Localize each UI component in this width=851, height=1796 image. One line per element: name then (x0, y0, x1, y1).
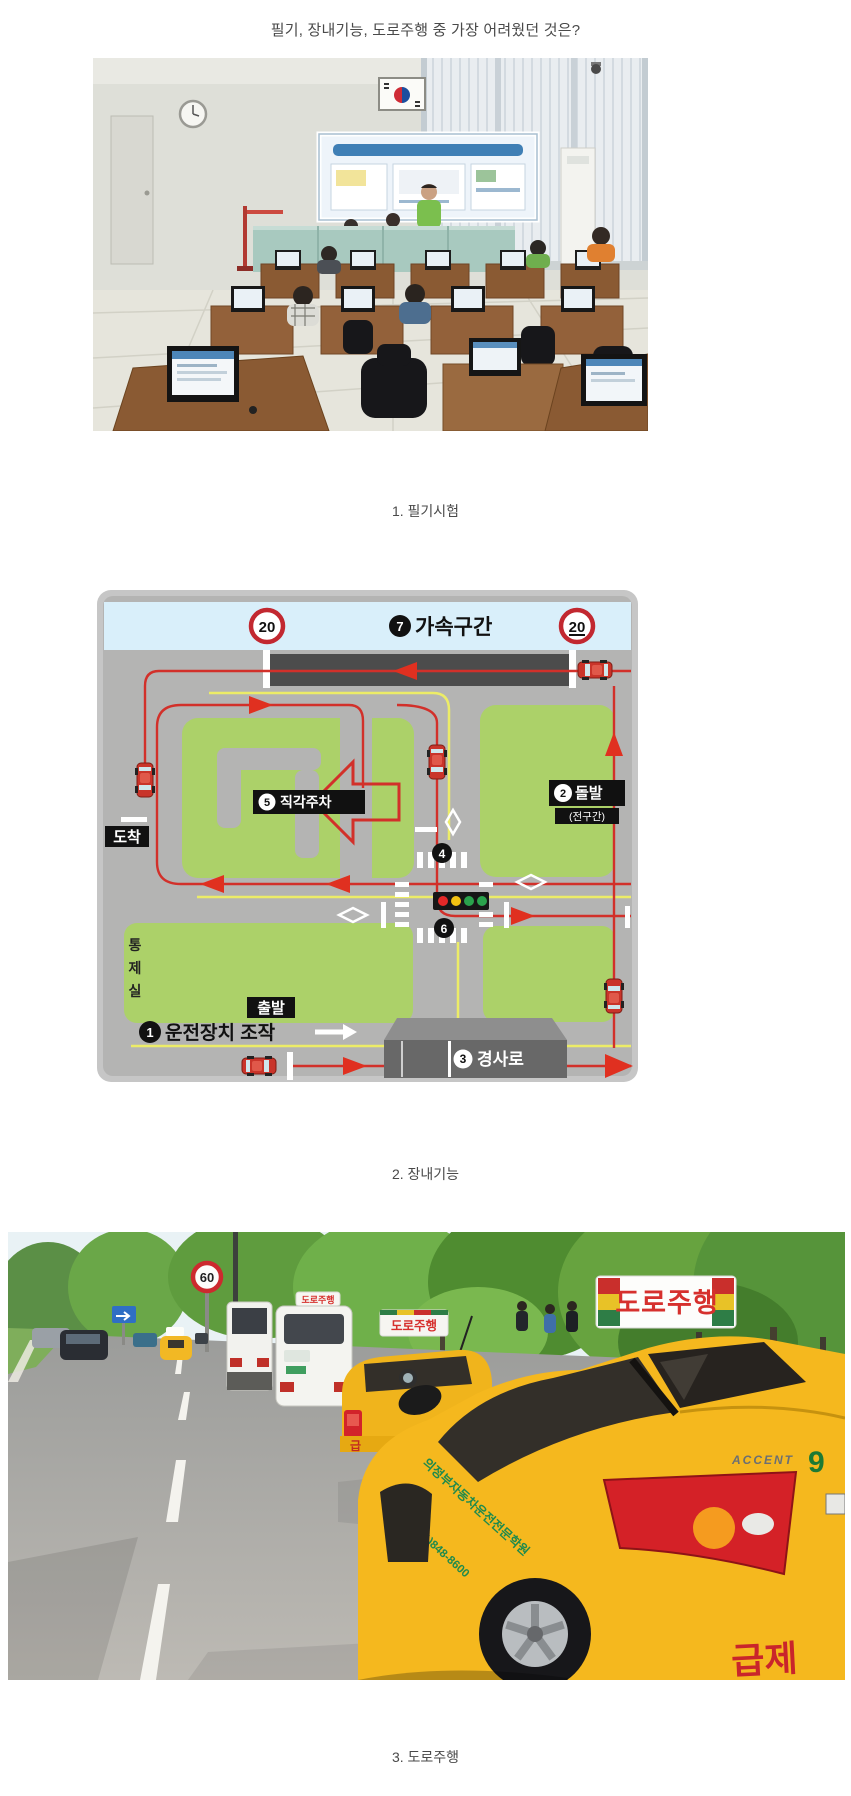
car-right-road (604, 979, 624, 1013)
car-acceleration-zone (578, 660, 612, 680)
svg-text:출발: 출발 (257, 1000, 285, 1017)
station-parking-label: 5 직각주차 (253, 790, 365, 814)
door (111, 116, 153, 264)
cctv-camera (591, 62, 601, 74)
page-title: 필기, 장내기능, 도로주행 중 가장 어려웠던 것은? (0, 19, 851, 40)
svg-text:통: 통 (129, 937, 142, 953)
svg-text:도로주행: 도로주행 (615, 1288, 718, 1318)
svg-text:20: 20 (569, 619, 586, 636)
station-acceleration-label: 7 가속구간 (389, 615, 492, 639)
hill-ramp (384, 1018, 567, 1078)
traffic-light (433, 892, 489, 910)
written-test-room-illustration (93, 58, 648, 431)
svg-text:도로주행: 도로주행 (391, 1318, 437, 1333)
svg-text:가속구간: 가속구간 (415, 616, 492, 639)
car-finish (135, 763, 155, 797)
svg-text:직각주차: 직각주차 (280, 794, 332, 810)
parked-truck-small (227, 1302, 272, 1390)
pedestrians (516, 1301, 578, 1333)
svg-text:경사로: 경사로 (477, 1050, 524, 1069)
caption-course-test: 2. 장내기능 (0, 1164, 851, 1184)
svg-text:도로주행: 도로주행 (301, 1294, 334, 1305)
svg-text:7: 7 (396, 619, 403, 634)
svg-text:도착: 도착 (113, 829, 141, 846)
svg-text:제: 제 (129, 960, 142, 976)
car-start (242, 1056, 276, 1076)
model-badge: ACCENT (731, 1453, 794, 1467)
roof-sign-foreground: 도로주행 (596, 1276, 736, 1328)
acceleration-band (104, 602, 631, 650)
station-ramp-label: 3 경사로 (454, 1050, 525, 1070)
svg-text:5: 5 (264, 797, 270, 809)
written-test-photo (93, 58, 648, 431)
svg-text:운전장치 조작: 운전장치 조작 (165, 1022, 276, 1044)
air-conditioner-vent (567, 156, 589, 164)
car-center-road (427, 745, 447, 779)
mouse (249, 406, 257, 414)
station-signal-marker: 6 (434, 918, 454, 938)
svg-text:(전구간): (전구간) (569, 811, 605, 823)
svg-text:2: 2 (560, 788, 566, 800)
svg-text:6: 6 (441, 922, 448, 936)
svg-text:60: 60 (200, 1270, 214, 1285)
wall-clock (180, 101, 206, 127)
svg-text:돌발: 돌발 (575, 785, 603, 802)
svg-text:4: 4 (439, 847, 446, 861)
door-handle (145, 191, 150, 196)
parked-van: 도로주행 (276, 1292, 352, 1406)
front-wheel-arch (380, 1483, 432, 1562)
course-map-illustration: 20 20 7 가속구간 5 직각주차 2 돌발 (전구간) 4 6 도착 (97, 590, 638, 1082)
caption-road-test: 3. 도로주행 (0, 1747, 851, 1767)
model-number-badge: 9 (808, 1446, 825, 1479)
course-map: 20 20 7 가속구간 5 직각주차 2 돌발 (전구간) 4 6 도착 (97, 590, 638, 1082)
speed-limit-sign-right: 20 (561, 610, 593, 642)
caption-written-test: 1. 필기시험 (0, 501, 851, 521)
svg-text:1: 1 (146, 1025, 153, 1040)
license-plate (826, 1494, 845, 1514)
road-driving-photo: 60 도로주행 (8, 1232, 845, 1680)
svg-text:20: 20 (259, 619, 276, 636)
road-driving-illustration: 60 도로주행 (8, 1232, 845, 1680)
start-label: 출발 (247, 997, 295, 1018)
station-intersection-marker: 4 (432, 843, 452, 863)
korean-flag (379, 78, 425, 110)
bumper-text: 급제 (730, 1638, 798, 1680)
svg-text:급: 급 (350, 1439, 361, 1453)
svg-text:실: 실 (129, 983, 142, 999)
speed-limit-sign-left: 20 (251, 610, 283, 642)
station-sudden-stop-label: 2 돌발 (전구간) (549, 780, 625, 824)
control-room-label: 통 제 실 (129, 937, 142, 999)
roof-sign-middle: 도로주행 (380, 1310, 448, 1336)
svg-text:3: 3 (460, 1052, 467, 1066)
finish-label: 도착 (105, 826, 149, 847)
